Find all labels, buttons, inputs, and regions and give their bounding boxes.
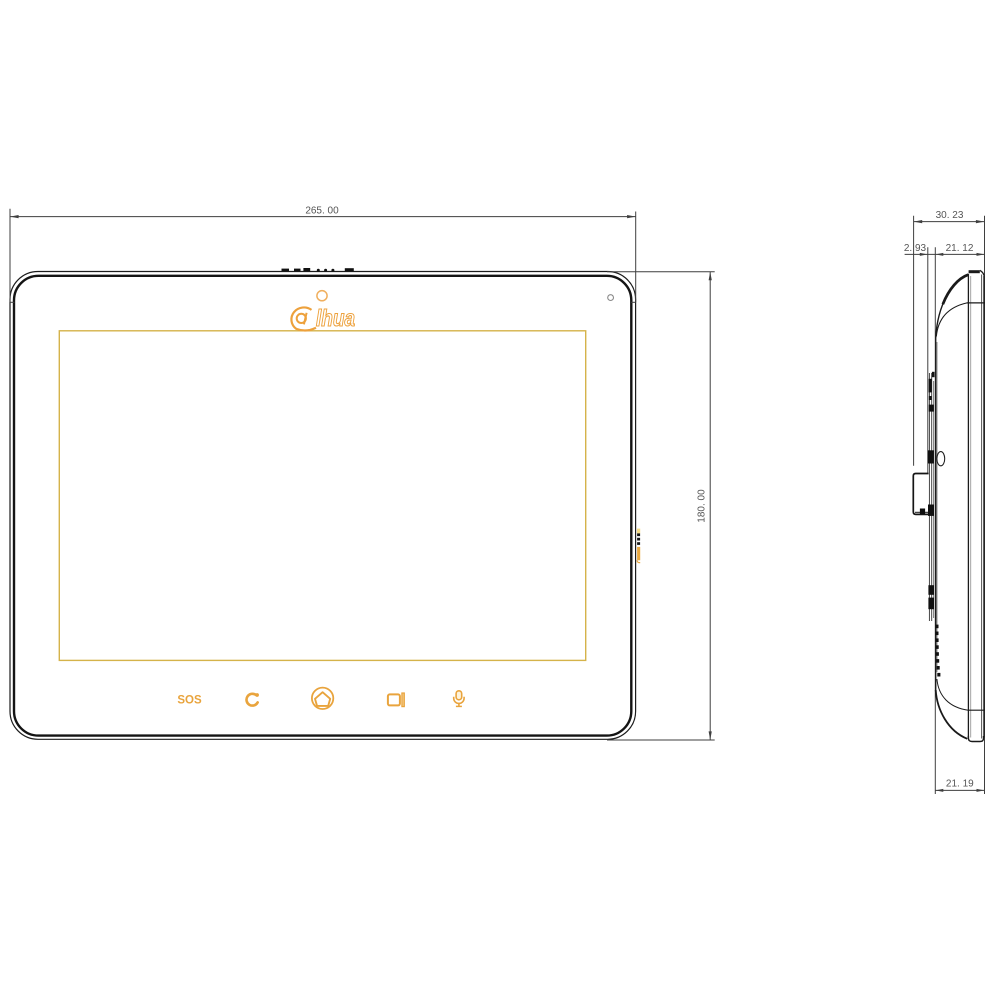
svg-text:lhua: lhua: [316, 305, 355, 331]
svg-text:2. 93: 2. 93: [904, 243, 927, 254]
svg-text:180. 00: 180. 00: [697, 489, 708, 523]
svg-text:30. 23: 30. 23: [936, 210, 964, 221]
svg-text:21. 12: 21. 12: [946, 243, 974, 254]
svg-text:265. 00: 265. 00: [305, 205, 339, 216]
svg-text:SOS: SOS: [177, 695, 202, 707]
svg-text:21. 19: 21. 19: [946, 778, 974, 789]
